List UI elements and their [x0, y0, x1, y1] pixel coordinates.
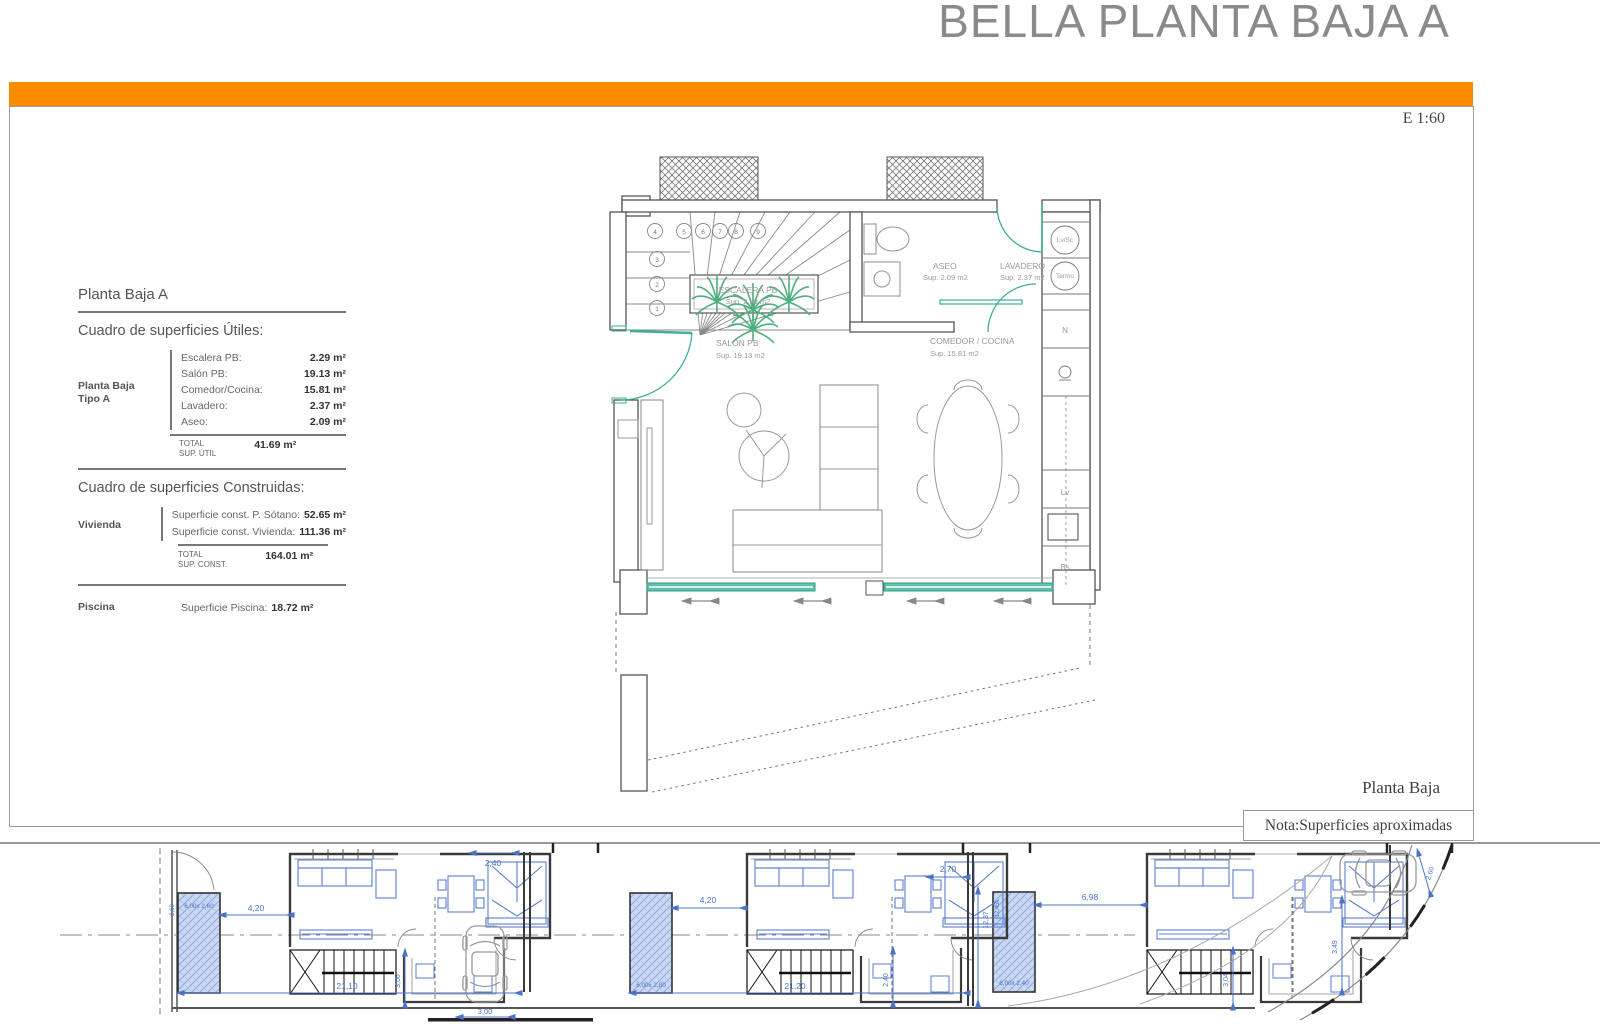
salon-furniture: [618, 385, 882, 572]
note-box: Nota:Superficies aproximadas: [1243, 810, 1474, 841]
room-label: SALÓN PB: [716, 338, 759, 348]
dining-table: [917, 380, 1019, 538]
room-area: Sup. 2.29 m2: [726, 297, 771, 306]
dim-label: 21,10: [336, 981, 358, 991]
room-area: Sup. 2.09 m2: [923, 273, 968, 282]
dim-label: 2,60: [170, 904, 176, 916]
gate-arc: [172, 852, 214, 890]
fridge-label: N: [1062, 326, 1068, 335]
dim-label: 2,40: [485, 858, 502, 868]
room-label: COMEDOR / COCINA: [930, 336, 1015, 346]
site-plan: 4,20 21,10 3,06 2,40 3,00 6,00x 2,60 2,6…: [0, 843, 1600, 1022]
pool: [630, 893, 672, 993]
stair-step-number: 7: [718, 229, 722, 236]
stair-step-number: 9: [756, 229, 760, 236]
stair-step-number: 1: [655, 306, 659, 313]
dim-label: 3,04: [1223, 973, 1230, 987]
stair-step-number: 3: [655, 257, 659, 264]
room-area: Sup. 2.37 m2: [1000, 273, 1045, 282]
dim-label: 4,20: [700, 895, 717, 905]
dim-label: 3,00: [478, 1007, 493, 1016]
dim-label: 12,45: [995, 902, 1001, 918]
room-label: LAVADERO: [1000, 261, 1045, 271]
dim-label: 2,40: [883, 973, 890, 987]
architectural-drawing: 1 2 3 4 5 6 7 8 9: [0, 0, 1600, 1024]
dim-label: 3,06: [395, 974, 402, 988]
stair-step-number: 6: [701, 229, 705, 236]
pool-label: 6,00x 2,60: [184, 903, 214, 910]
sliding-door: [647, 578, 1053, 595]
stair-step-number: 4: [653, 229, 657, 236]
car-icon: [1340, 851, 1416, 895]
dim-label: 4,20: [248, 903, 265, 913]
dim-label: 2,70: [940, 864, 957, 874]
room-label: ASEO: [933, 261, 957, 271]
dim-label: 6,98: [1082, 892, 1099, 902]
dim-bar: [428, 1018, 593, 1022]
pool-label: 6,00x 2,40: [999, 980, 1029, 987]
stair-step-number: 8: [734, 229, 738, 236]
doors: [612, 204, 1042, 403]
bin-label: Bs: [1060, 563, 1069, 572]
dim-label: 12,37: [983, 911, 990, 929]
toilet-icon: [864, 224, 909, 254]
pool-label: 6,00x 2,80: [636, 982, 666, 989]
boundary-wall: [172, 850, 177, 1012]
site-house: [1147, 849, 1407, 1002]
floor-plan: 1 2 3 4 5 6 7 8 9: [610, 157, 1100, 792]
drawing-sheet-page: BELLA PLANTA BAJA A E 1:60 Planta Baja N…: [0, 0, 1600, 1024]
water-heater-label: Termo: [1056, 273, 1074, 280]
dim-label: 21,20: [784, 981, 806, 991]
hatched-planter: [660, 157, 758, 201]
dishwasher-label: Lv: [1061, 488, 1069, 497]
room-area: Sup. 15.81 m2: [930, 349, 979, 358]
site-house: [290, 849, 550, 1002]
stair-step-number: 5: [682, 229, 686, 236]
stair-step-number: 2: [655, 282, 659, 289]
dim-label: 2,60: [1425, 866, 1436, 881]
dim-label: 3,49: [1332, 940, 1339, 954]
room-area: Sup. 19.13 m2: [716, 351, 765, 360]
washer-dryer-label: Lv/Sc: [1057, 237, 1074, 244]
sink-icon: [864, 262, 900, 296]
room-label: ESCALERA PB: [719, 285, 778, 295]
terrace-boundary: [616, 605, 1095, 792]
hatched-planter: [887, 157, 983, 201]
fence-ticks: [553, 843, 1452, 853]
